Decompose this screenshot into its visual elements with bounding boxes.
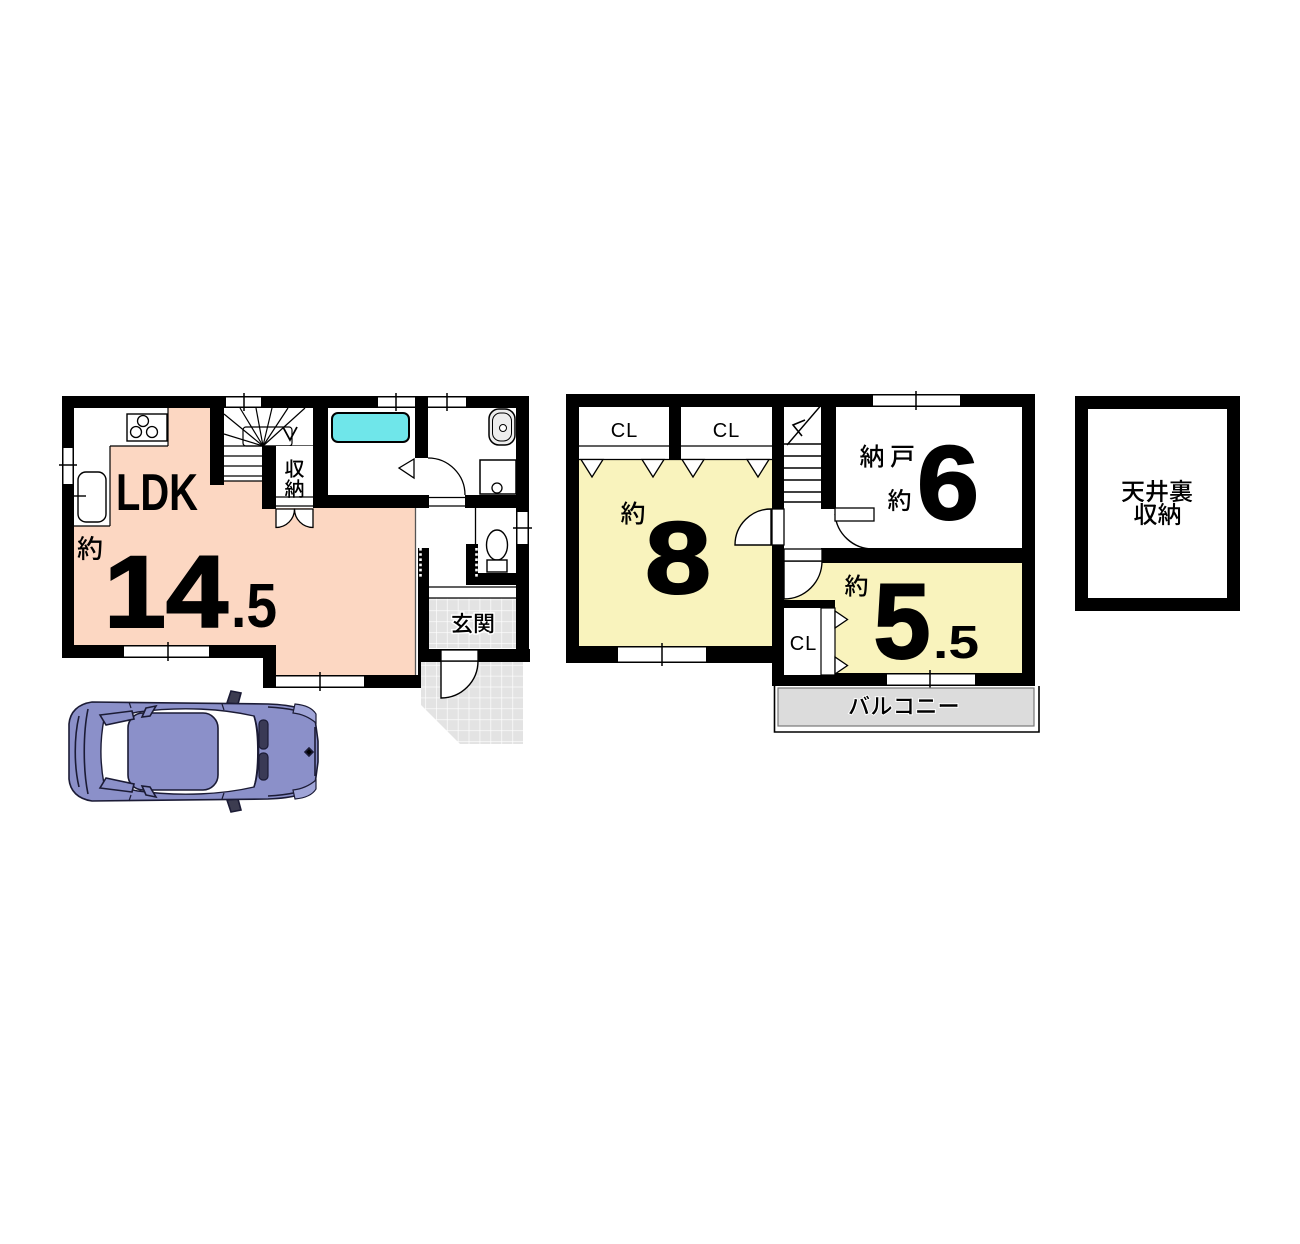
- svg-text:CL: CL: [713, 420, 741, 442]
- svg-text:14: 14: [104, 535, 228, 649]
- svg-text:5: 5: [874, 561, 931, 681]
- svg-text:CL: CL: [611, 420, 639, 442]
- svg-text:LDK: LDK: [116, 464, 198, 522]
- svg-text:.5: .5: [231, 572, 277, 641]
- svg-text:8: 8: [645, 501, 711, 615]
- svg-text:6: 6: [917, 425, 979, 542]
- svg-text:.5: .5: [933, 616, 979, 668]
- svg-text:CL: CL: [790, 633, 818, 655]
